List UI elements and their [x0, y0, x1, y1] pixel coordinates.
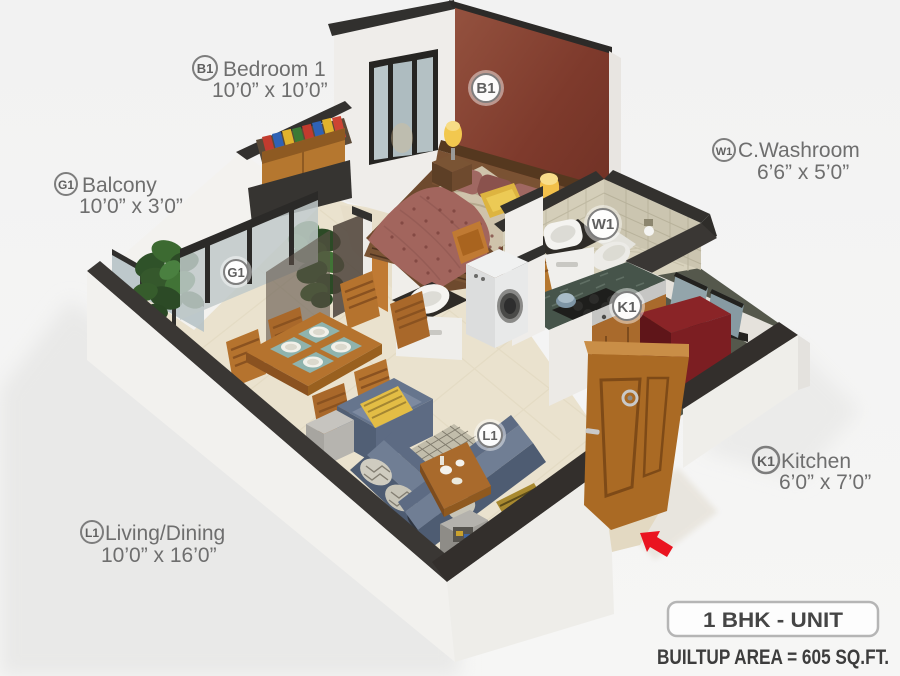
svg-text:1 BHK - UNIT: 1 BHK - UNIT	[703, 609, 843, 632]
svg-text:K1: K1	[757, 453, 775, 469]
svg-text:BUILTUP AREA = 605 SQ.FT.: BUILTUP AREA = 605 SQ.FT.	[657, 646, 889, 669]
svg-text:6’0” x 7’0”: 6’0” x 7’0”	[779, 471, 871, 494]
svg-text:B1: B1	[197, 61, 214, 76]
svg-text:B1: B1	[476, 80, 495, 97]
svg-text:Kitchen: Kitchen	[781, 450, 851, 473]
svg-text:Balcony: Balcony	[82, 174, 157, 197]
svg-text:W1: W1	[716, 146, 733, 158]
svg-text:Living/Dining: Living/Dining	[105, 522, 225, 545]
svg-text:Bedroom 1: Bedroom 1	[223, 58, 326, 81]
svg-text:G1: G1	[227, 265, 244, 280]
svg-text:G1: G1	[58, 178, 74, 192]
svg-text:10’0” x 3’0”: 10’0” x 3’0”	[79, 195, 183, 218]
svg-text:10’0” x 10’0”: 10’0” x 10’0”	[212, 79, 328, 102]
svg-text:10’0” x 16’0”: 10’0” x 16’0”	[101, 544, 217, 567]
svg-text:L1: L1	[85, 526, 99, 540]
svg-text:C.Washroom: C.Washroom	[738, 139, 860, 162]
svg-text:K1: K1	[617, 299, 636, 316]
svg-text:6’6” x 5’0”: 6’6” x 5’0”	[757, 161, 849, 184]
svg-text:W1: W1	[592, 216, 615, 233]
svg-text:L1: L1	[482, 428, 497, 443]
